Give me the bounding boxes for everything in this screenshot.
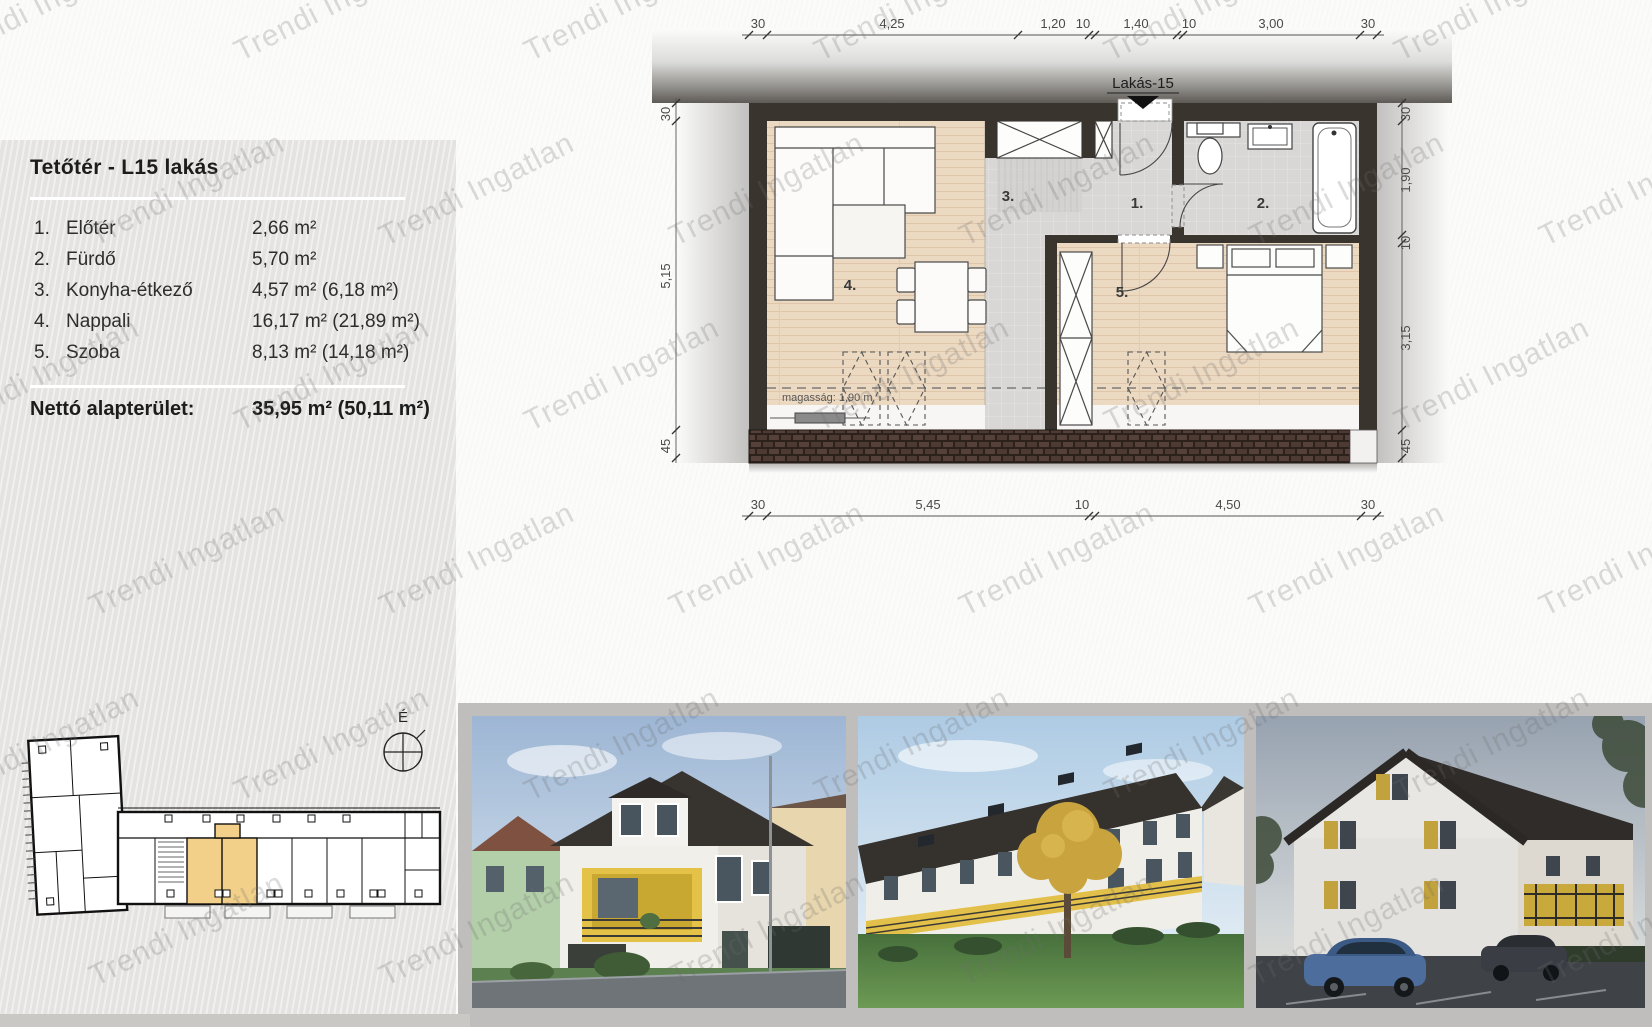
floor-plan: magasság: 1,90 m [600, 0, 1480, 560]
page-title: Tetőtér - L15 lakás [30, 156, 219, 180]
room-area: 16,17 m² (21,89 m²) [252, 311, 420, 333]
room-number: 2. [34, 249, 50, 271]
room-name: Előtér [66, 218, 116, 240]
svg-text:10: 10 [1398, 236, 1413, 250]
dining-table [915, 262, 968, 332]
room-list-item: 4. Nappali 16,17 m² (21,89 m²) [0, 311, 456, 342]
room-label-1: 1. [1131, 195, 1144, 212]
chair [968, 300, 986, 324]
divider [30, 197, 405, 200]
svg-text:1,40: 1,40 [1123, 16, 1148, 31]
room-list-item: 2. Fürdő 5,70 m² [0, 249, 456, 280]
watermark-text: Trendi Ingatlan [0, 0, 145, 69]
room-name: Konyha-étkező [66, 280, 193, 302]
bottom-edge-bar [0, 1014, 470, 1027]
nightstand [1197, 245, 1223, 268]
north-label: É [398, 709, 408, 726]
chair [897, 268, 915, 292]
street-view-render [472, 716, 846, 1008]
north-compass: É [384, 709, 425, 771]
chair [897, 300, 915, 324]
total-area-row: Nettó alapterület: 35,95 m² (50,11 m²) [0, 398, 456, 428]
room-label-3: 3. [1002, 188, 1015, 205]
room-number: 3. [34, 280, 50, 302]
svg-text:3,00: 3,00 [1258, 16, 1283, 31]
room-area: 4,57 m² (6,18 m²) [252, 280, 399, 302]
svg-text:45: 45 [1398, 439, 1413, 453]
room-list-item: 1. Előtér 2,66 m² [0, 218, 456, 249]
room-label-4: 4. [844, 277, 857, 294]
watermark-text: Trendi Ingatlan [1534, 496, 1652, 623]
site-plan: É [15, 700, 450, 930]
garden-view-render [858, 716, 1244, 1008]
room-list-item: 5. Szoba 8,13 m² (14,18 m²) [0, 342, 456, 373]
svg-text:30: 30 [751, 497, 765, 512]
total-area-label: Nettó alapterület: [30, 398, 194, 421]
room-list-item: 3. Konyha-étkező 4,57 m² (6,18 m²) [0, 280, 456, 311]
unit-label: Lakás-15 [1112, 75, 1174, 92]
svg-text:30: 30 [658, 107, 673, 121]
svg-text:45: 45 [658, 439, 673, 453]
svg-text:5,45: 5,45 [915, 497, 940, 512]
watermark-text: Trendi Ingatlan [1534, 126, 1652, 253]
divider [30, 385, 405, 388]
room-number: 1. [34, 218, 50, 240]
watermark-text: Trendi Ingatlan [229, 0, 435, 69]
room-area: 8,13 m² (14,18 m²) [252, 342, 409, 364]
room-number: 5. [34, 342, 50, 364]
room-list: 1. Előtér 2,66 m² 2. Fürdő 5,70 m² 3. Ko… [0, 218, 456, 373]
photo-street-view[interactable] [472, 716, 846, 1008]
room-name: Fürdő [66, 249, 116, 271]
pillow [1232, 249, 1270, 267]
room-number: 4. [34, 311, 50, 333]
room-name: Nappali [66, 311, 130, 333]
photo-strip [458, 703, 1652, 1027]
coffee-table [833, 205, 905, 258]
svg-text:4,25: 4,25 [879, 16, 904, 31]
bathtub [1313, 123, 1356, 233]
corridor-floor [985, 243, 1045, 430]
nightstand [1326, 245, 1352, 268]
evening-view-render [1256, 716, 1645, 1008]
height-note: magasság: 1,90 m [782, 392, 873, 404]
building-footprint [20, 736, 440, 918]
room-area: 5,70 m² [252, 249, 316, 271]
svg-text:10: 10 [1075, 497, 1089, 512]
brick-wall [749, 430, 1377, 463]
toilet-tank [1197, 123, 1223, 134]
total-area-value: 35,95 m² (50,11 m²) [252, 398, 430, 421]
page: magasság: 1,90 m [0, 0, 1652, 1027]
svg-text:3,15: 3,15 [1398, 325, 1413, 350]
wardrobe [1060, 252, 1092, 425]
photo-garden-view[interactable] [858, 716, 1244, 1008]
pillow [1276, 249, 1314, 267]
room-label-5: 5. [1116, 284, 1129, 301]
svg-text:1,20: 1,20 [1040, 16, 1065, 31]
svg-text:10: 10 [1076, 16, 1090, 31]
svg-text:5,15: 5,15 [658, 263, 673, 288]
room-name: Szoba [66, 342, 120, 364]
svg-text:30: 30 [751, 16, 765, 31]
chair [968, 268, 986, 292]
svg-text:4,50: 4,50 [1215, 497, 1240, 512]
svg-text:30: 30 [1398, 107, 1413, 121]
svg-text:1,90: 1,90 [1398, 167, 1413, 192]
room-label-2: 2. [1257, 195, 1270, 212]
svg-text:30: 30 [1361, 16, 1375, 31]
room-area: 2,66 m² [252, 218, 316, 240]
svg-text:10: 10 [1182, 16, 1196, 31]
toilet [1198, 138, 1222, 174]
photo-evening-view[interactable] [1256, 716, 1645, 1008]
svg-text:30: 30 [1361, 497, 1375, 512]
